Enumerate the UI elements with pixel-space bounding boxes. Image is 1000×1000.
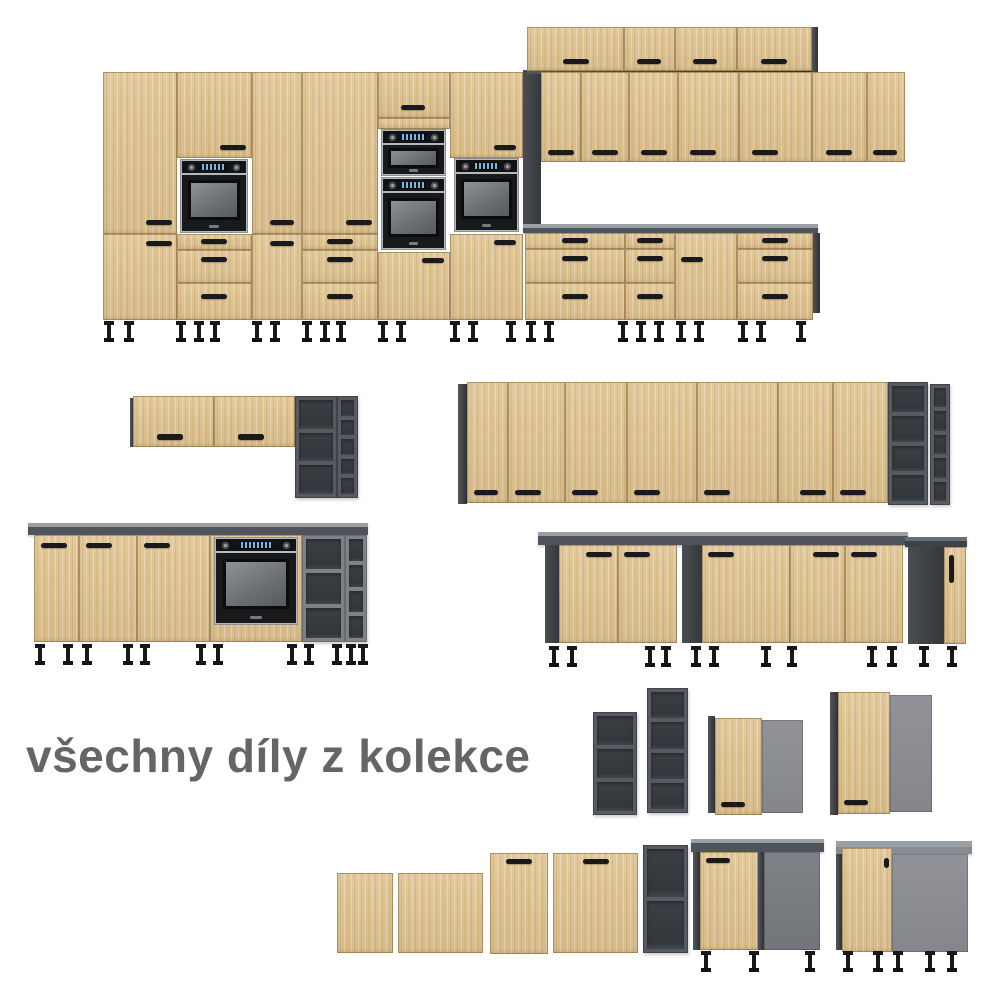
built-in-oven [214,537,298,625]
oven-tower-top-door [177,72,252,158]
shelf-compartment [647,901,684,949]
cabinet-leg [876,951,880,968]
oven-knob-left [222,542,229,549]
base-door [618,545,677,643]
shelf-compartment [892,416,924,442]
wall-door [867,72,905,162]
wall-door [527,27,624,71]
drawer-front [525,283,625,320]
shelf-compartment [647,849,684,897]
oven-door [383,193,444,248]
shelf-compartment [892,475,924,501]
countertop [538,532,680,545]
cabinet-leg [127,321,131,338]
door-handle [637,59,661,64]
cabinet-leg [381,321,385,338]
door-handle [86,543,112,548]
end-door [944,547,966,644]
cabinet-leg [509,321,513,338]
shelf-compartment [341,400,354,416]
open-shelf-unit [593,712,637,815]
oven-glass [461,179,511,219]
cabinet-leg [399,321,403,338]
wall-door [624,27,675,71]
door-handle [548,150,574,155]
cabinet-leg [273,321,277,338]
oven-glass [388,148,438,169]
cabinet-leg [922,646,926,663]
filler-strip [378,118,450,129]
cabinet-leg [197,321,201,338]
cabinet-leg [657,321,661,338]
cabinet-leg [759,321,763,338]
cabinet-leg [712,646,716,663]
oven-knob-right [431,182,438,189]
open-shelf-rack [337,396,358,498]
open-shelf-unit [302,535,345,642]
wall-door [565,382,627,503]
door-handle [800,490,826,495]
cabinet-leg [664,646,668,663]
oven-brand-label [482,224,492,227]
open-shelf-unit [295,396,337,498]
drawer-handle [327,294,353,299]
drawer-handle [201,239,227,244]
open-shelf-rack [345,535,367,642]
door-handle [146,241,172,246]
oven-control-panel [182,161,246,173]
shelf-compartment [341,478,354,494]
side-panel [545,545,559,643]
cabinet-leg [471,321,475,338]
corner-panel [764,852,820,950]
shelf-compartment [651,753,684,779]
door-handle [515,490,541,495]
cabinet-leg [950,951,954,968]
cabinet-leg [255,321,259,338]
base-door [700,852,758,950]
oven-knob-left [389,134,396,141]
door-handle [761,59,787,64]
drawer-front [177,234,252,250]
cabinet-leg [648,646,652,663]
leg-row [0,646,1000,668]
oven-knob-right [283,542,290,549]
door-handle [752,150,778,155]
door-handle [506,859,532,864]
base-door [103,234,177,320]
oven-door [182,175,246,231]
base-door [675,233,737,320]
base-door [79,535,137,642]
door-handle [693,59,717,64]
shelf-compartment [306,608,341,638]
flap-door [214,396,295,447]
shelf-compartment [299,433,333,462]
cabinet-leg [764,646,768,663]
oven-glass [223,559,289,609]
open-shelf-unit [888,382,928,505]
cabinet-leg [179,321,183,338]
drawer-handle [762,256,788,261]
cabinet-leg [752,951,756,968]
base-door [137,535,210,642]
door-handle [949,555,954,583]
door-handle [494,240,516,245]
side-edge [812,27,818,74]
base-door [252,234,302,320]
cabinet-body [908,547,944,644]
door-handle [721,802,745,807]
front-panel [398,873,483,953]
oven-brand-label [209,225,219,228]
base-door [559,545,618,643]
oven-knob-right [431,134,438,141]
cabinet-leg [704,951,708,968]
oven-control-panel [383,131,444,143]
oven-brand-label [409,169,419,172]
door-handle [851,552,877,557]
oven-control-panel [216,539,296,551]
shelf-compartment [934,388,946,407]
cabinet-leg [950,646,954,663]
side-edge [812,233,820,313]
front-panel [337,873,393,953]
oven-door [216,553,296,623]
wall-door [627,382,697,503]
oven-glass [188,180,241,220]
cabinet-leg [339,321,343,338]
drawer-front [525,249,625,283]
oven-brand-label [409,242,419,245]
door-handle [270,220,294,225]
shelf-compartment [306,539,341,569]
cabinet-leg [570,646,574,663]
leg-row [0,951,1000,973]
door-handle [238,434,264,440]
oven-display [475,163,497,169]
drawer-front [737,283,813,320]
shelf-compartment [934,435,946,454]
oven-tower-top-door [450,72,523,158]
door-handle [706,858,730,863]
open-shelf-unit [647,688,688,813]
cabinet-leg [529,321,533,338]
side-edge [458,384,467,504]
shelf-compartment [299,400,333,429]
cabinet-leg [305,321,309,338]
drawer-handle [327,239,353,244]
oven-door [383,145,444,174]
drawer-front [625,283,675,320]
cabinet-leg [694,646,698,663]
drawer-handle [201,294,227,299]
wall-door [629,72,678,162]
tall-door [252,72,302,234]
built-in-oven [180,159,248,233]
wall-door [581,72,629,162]
door-handle [474,490,498,495]
side-edge [708,716,715,813]
wall-door [812,72,867,162]
door-handle [144,543,170,548]
wall-door [467,382,508,503]
base-door [845,545,903,643]
oven-control-panel [383,179,444,191]
door-handle [270,241,294,246]
corner-panel [890,695,932,812]
drawer-handle [562,238,588,243]
cabinet-leg [928,951,932,968]
cabinet-leg [896,951,900,968]
shelf-compartment [651,783,684,809]
oven-control-panel [456,160,517,172]
door-handle [157,434,183,440]
door-handle [624,552,650,557]
cabinet-leg [679,321,683,338]
shelf-compartment [306,573,341,603]
shelf-compartment [934,482,946,501]
cabinet-leg [213,321,217,338]
door-handle [563,59,589,64]
shelf-compartment [349,565,363,587]
door-handle [873,150,897,155]
oven-brand-label [250,616,263,619]
cabinet-leg [453,321,457,338]
base-door [450,234,523,320]
shelf-compartment [341,420,354,436]
door-handle [826,150,852,155]
door-handle [572,490,598,495]
drawer-front [625,233,675,249]
door-handle [41,543,67,548]
shelf-compartment [651,722,684,748]
oven-glass [388,198,438,237]
door-handle [401,105,425,110]
shelf-compartment [349,591,363,613]
cabinet-leg [890,646,894,663]
wall-door [833,382,888,503]
wall-door [675,27,737,71]
cabinet-leg [639,321,643,338]
cabinet-leg [808,951,812,968]
built-in-oven [381,177,446,250]
flap-door [133,396,214,447]
door-handle [681,257,703,262]
tall-door [103,72,177,234]
oven-display [241,542,272,548]
door-handle [634,490,660,495]
double-oven-tower-top-door [378,72,450,118]
built-in-oven [454,158,519,232]
base-door [702,545,790,643]
drawer-front [737,249,813,283]
side-edge [693,852,700,950]
drawer-handle [637,294,663,299]
wall-door [838,692,890,814]
shelf-compartment [934,411,946,430]
shelf-compartment [934,458,946,477]
shelf-compartment [597,716,633,745]
drawer-front [177,250,252,283]
countertop [523,224,818,233]
drawer-handle [637,238,663,243]
kitchen-collection-collage: všechny díly z kolekce [0,0,1000,1000]
cabinet-leg [846,951,850,968]
door-handle [494,145,516,150]
drawer-front [302,234,378,250]
wall-door [508,382,565,503]
collection-caption: všechny díly z kolekce [26,729,531,783]
door-handle [641,150,667,155]
door-with-handle [490,853,548,954]
wall-door [697,382,778,503]
wall-door [778,382,833,503]
drawer-front [625,249,675,283]
drawer-front [525,233,625,249]
oven-door [456,174,517,230]
drawer-front [302,250,378,283]
door-handle [586,552,612,557]
shelf-compartment [892,386,924,412]
door-handle [704,490,730,495]
wall-door [715,718,762,815]
oven-display [402,182,424,188]
shelf-compartment [341,439,354,455]
shelf-compartment [651,692,684,718]
cabinet-leg [799,321,803,338]
oven-knob-left [389,182,396,189]
shelf-compartment [597,782,633,811]
countertop [905,537,967,547]
door-handle [690,150,716,155]
door-handle [422,258,444,263]
side-panel [523,70,541,224]
cabinet-leg [621,321,625,338]
corner-panel [892,854,968,952]
wall-door [678,72,739,162]
open-shelf-rack [930,384,950,505]
drawer-front [737,233,813,249]
shelf-compartment [597,749,633,778]
door-handle [346,220,372,225]
countertop [28,523,368,535]
drawer-front [177,283,252,320]
wall-door [541,72,581,162]
wall-door [739,72,812,162]
door-handle [146,220,172,225]
door-with-handle [553,853,638,953]
drawer-handle [327,257,353,262]
cabinet-leg [552,646,556,663]
corner-panel [762,720,803,813]
countertop [678,532,908,545]
cabinet-leg [323,321,327,338]
shelf-compartment [341,459,354,475]
countertop [691,839,824,852]
drawer-handle [201,257,227,262]
oven-knob-left [188,164,195,171]
oven-knob-left [462,163,469,170]
cabinet-leg [107,321,111,338]
shelf-compartment [892,446,924,472]
door-handle [220,145,246,150]
drawer-handle [562,256,588,261]
side-panel [682,545,702,643]
tall-door [302,72,378,234]
built-in-microwave [381,129,446,176]
base-door [790,545,845,643]
shelf-compartment [349,616,363,638]
door-handle [884,858,889,868]
wall-door [737,27,812,71]
oven-display [202,164,225,170]
drawer-handle [637,256,663,261]
oven-knob-right [233,164,240,171]
drawer-handle [562,294,588,299]
cabinet-leg [547,321,551,338]
leg-row [0,321,1000,343]
shelf-compartment [299,465,333,494]
door-handle [708,552,734,557]
oven-knob-right [504,163,511,170]
door-handle [840,490,866,495]
drawer-handle [762,294,788,299]
door-handle [592,150,618,155]
open-shelf-unit [643,845,688,953]
cabinet-leg [697,321,701,338]
cabinet-leg [870,646,874,663]
cabinet-leg [741,321,745,338]
door-handle [844,800,868,805]
cabinet-leg [790,646,794,663]
base-door [842,848,892,952]
side-edge [830,692,838,815]
oven-display [402,134,424,140]
drawer-handle [762,238,788,243]
base-door [378,252,450,320]
door-handle [813,552,839,557]
door-handle [583,859,609,864]
base-door [34,535,79,642]
drawer-front [302,283,378,320]
shelf-compartment [349,539,363,561]
